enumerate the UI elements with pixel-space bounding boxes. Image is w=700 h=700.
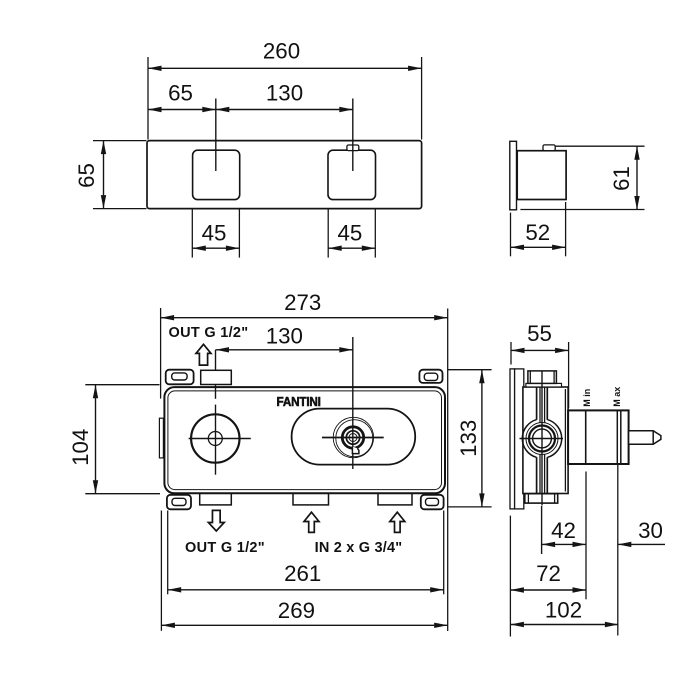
svg-text:55: 55 <box>527 321 552 346</box>
svg-text:102: 102 <box>545 598 582 623</box>
svg-text:261: 261 <box>284 561 321 586</box>
svg-text:OUT G 1/2": OUT G 1/2" <box>169 325 249 341</box>
svg-text:61: 61 <box>609 166 634 191</box>
svg-text:30: 30 <box>638 518 663 543</box>
svg-text:M ax: M ax <box>612 387 622 407</box>
svg-text:45: 45 <box>337 220 362 245</box>
svg-text:OUT G 1/2": OUT G 1/2" <box>185 540 265 556</box>
svg-text:104: 104 <box>68 429 93 466</box>
svg-text:52: 52 <box>525 220 550 245</box>
svg-text:65: 65 <box>74 163 99 188</box>
svg-text:130: 130 <box>266 324 303 349</box>
svg-text:273: 273 <box>284 290 321 315</box>
svg-text:FANTINI: FANTINI <box>276 394 320 408</box>
svg-text:72: 72 <box>536 561 561 586</box>
svg-text:260: 260 <box>263 38 300 63</box>
svg-text:65: 65 <box>168 81 193 106</box>
svg-text:269: 269 <box>278 598 315 623</box>
svg-text:IN 2 x G 3/4": IN 2 x G 3/4" <box>315 540 403 556</box>
svg-text:130: 130 <box>266 81 303 106</box>
svg-text:133: 133 <box>456 420 481 457</box>
svg-text:45: 45 <box>202 220 227 245</box>
svg-text:M in: M in <box>582 389 592 407</box>
svg-text:42: 42 <box>551 518 576 543</box>
